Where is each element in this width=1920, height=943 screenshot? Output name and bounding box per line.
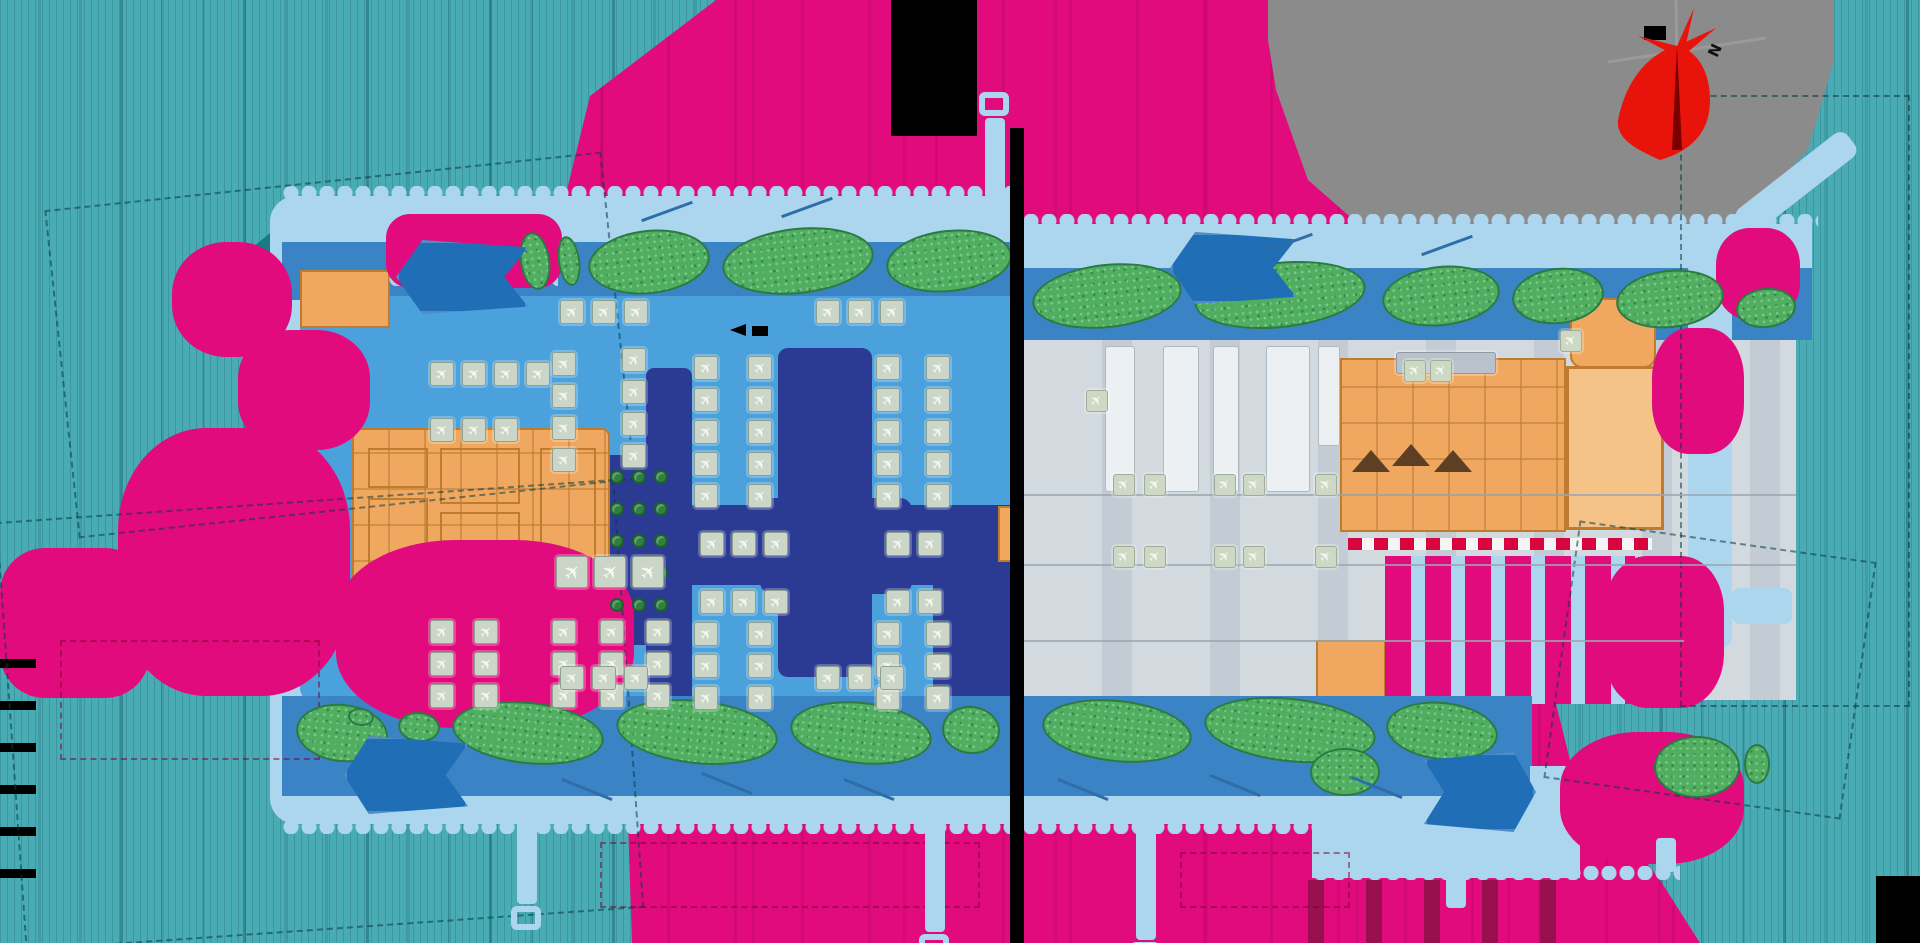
gate-stand-icon: ✈ bbox=[748, 420, 772, 444]
airplane-icon: ✈ bbox=[1562, 332, 1580, 350]
gate-stand-icon: ✈ bbox=[646, 684, 670, 708]
airplane-icon: ✈ bbox=[750, 656, 770, 676]
gate-stand-icon: ✈ bbox=[430, 684, 454, 708]
airplane-icon: ✈ bbox=[624, 414, 644, 434]
future-terminal-slab bbox=[1213, 346, 1239, 492]
avenue-culdesac-loop bbox=[919, 934, 949, 943]
airplane-icon: ✈ bbox=[432, 622, 452, 642]
airplane-icon: ✈ bbox=[1088, 392, 1106, 410]
gate-stand-icon: ✈ bbox=[592, 666, 616, 690]
gate-stand-icon: ✈ bbox=[1404, 360, 1426, 382]
airplane-icon: ✈ bbox=[696, 390, 716, 410]
airplane-icon: ✈ bbox=[562, 668, 582, 688]
gate-stand-icon: ✈ bbox=[632, 556, 664, 588]
gate-stand-icon: ✈ bbox=[552, 620, 576, 644]
airplane-icon: ✈ bbox=[1115, 548, 1133, 566]
airplane-icon: ✈ bbox=[882, 302, 902, 322]
airplane-icon: ✈ bbox=[750, 688, 770, 708]
airplane-icon: ✈ bbox=[559, 559, 585, 585]
airplane-icon: ✈ bbox=[878, 454, 898, 474]
airplane-icon: ✈ bbox=[850, 302, 870, 322]
tree-icon bbox=[654, 502, 668, 516]
gate-stand-icon: ✈ bbox=[694, 452, 718, 476]
gate-stand-icon: ✈ bbox=[622, 444, 646, 468]
gate-stand-icon: ✈ bbox=[886, 532, 910, 556]
gate-stand-icon: ✈ bbox=[848, 666, 872, 690]
airplane-icon: ✈ bbox=[696, 358, 716, 378]
phase-divider-line bbox=[1010, 128, 1024, 943]
gate-stand-icon: ✈ bbox=[926, 484, 950, 508]
tree-icon bbox=[632, 470, 646, 484]
airplane-icon: ✈ bbox=[702, 592, 722, 612]
gate-stand-icon: ✈ bbox=[764, 532, 788, 556]
airplane-icon: ✈ bbox=[928, 624, 948, 644]
tree-icon bbox=[654, 534, 668, 548]
airplane-icon: ✈ bbox=[594, 302, 614, 322]
gate-stand-icon: ✈ bbox=[1560, 330, 1582, 352]
airplane-icon: ✈ bbox=[528, 364, 548, 384]
airplane-icon: ✈ bbox=[696, 454, 716, 474]
gate-stand-icon: ✈ bbox=[700, 532, 724, 556]
gate-stand-icon: ✈ bbox=[552, 352, 576, 376]
gate-stand-icon: ✈ bbox=[594, 556, 626, 588]
gate-stand-icon: ✈ bbox=[886, 590, 910, 614]
airplane-icon: ✈ bbox=[496, 364, 516, 384]
airplane-icon: ✈ bbox=[928, 486, 948, 506]
avenue-culdesac-loop bbox=[511, 906, 541, 930]
gate-stand-icon: ✈ bbox=[1144, 546, 1166, 568]
gate-stand-icon: ✈ bbox=[748, 654, 772, 678]
gate-stand-icon: ✈ bbox=[622, 380, 646, 404]
gate-stand-icon: ✈ bbox=[926, 388, 950, 412]
gate-stand-icon: ✈ bbox=[526, 362, 550, 386]
airplane-icon: ✈ bbox=[734, 592, 754, 612]
airplane-icon: ✈ bbox=[818, 302, 838, 322]
gate-stand-icon: ✈ bbox=[1214, 546, 1236, 568]
gate-stand-icon: ✈ bbox=[748, 484, 772, 508]
survey-guide-outline bbox=[44, 152, 635, 539]
gate-stand-icon: ✈ bbox=[926, 356, 950, 380]
gate-stand-icon: ✈ bbox=[700, 590, 724, 614]
gate-stand-icon: ✈ bbox=[918, 532, 942, 556]
tree-icon bbox=[654, 470, 668, 484]
airplane-icon: ✈ bbox=[554, 386, 574, 406]
airplane-icon: ✈ bbox=[464, 364, 484, 384]
gate-stand-icon: ✈ bbox=[646, 620, 670, 644]
gate-stand-icon: ✈ bbox=[1113, 474, 1135, 496]
landscaped-avenue bbox=[1656, 838, 1676, 872]
avenue-culdesac-loop bbox=[979, 92, 1009, 116]
airplane-icon: ✈ bbox=[476, 622, 496, 642]
gate-stand-icon: ✈ bbox=[494, 362, 518, 386]
gate-stand-icon: ✈ bbox=[552, 384, 576, 408]
gate-stand-icon: ✈ bbox=[430, 362, 454, 386]
airplane-icon: ✈ bbox=[1245, 548, 1263, 566]
airplane-icon: ✈ bbox=[496, 420, 516, 440]
airplane-icon: ✈ bbox=[920, 592, 940, 612]
lawn-patch bbox=[1744, 744, 1770, 784]
airplane-icon: ✈ bbox=[554, 418, 574, 438]
gate-stand-icon: ✈ bbox=[816, 300, 840, 324]
gate-stand-icon: ✈ bbox=[876, 622, 900, 646]
tree-icon bbox=[632, 534, 646, 548]
gate-stand-icon: ✈ bbox=[816, 666, 840, 690]
landscaped-avenue bbox=[1446, 838, 1466, 908]
gate-stand-icon: ✈ bbox=[624, 300, 648, 324]
airplane-icon: ✈ bbox=[928, 390, 948, 410]
landscaped-avenue bbox=[925, 820, 945, 932]
landscaped-avenue bbox=[985, 118, 1005, 198]
airplane-icon: ✈ bbox=[928, 656, 948, 676]
gate-stand-icon: ✈ bbox=[876, 420, 900, 444]
airplane-icon: ✈ bbox=[750, 390, 770, 410]
airplane-icon: ✈ bbox=[928, 358, 948, 378]
airplane-icon: ✈ bbox=[750, 454, 770, 474]
gate-stand-icon: ✈ bbox=[624, 666, 648, 690]
gate-stand-icon: ✈ bbox=[694, 484, 718, 508]
landscaped-avenue bbox=[1136, 820, 1156, 940]
airplane-icon: ✈ bbox=[928, 422, 948, 442]
gate-stand-icon: ✈ bbox=[880, 666, 904, 690]
airplane-icon: ✈ bbox=[702, 534, 722, 554]
gate-stand-icon: ✈ bbox=[474, 684, 498, 708]
future-terminal-slab bbox=[1266, 346, 1310, 492]
airplane-icon: ✈ bbox=[624, 382, 644, 402]
airplane-icon: ✈ bbox=[626, 302, 646, 322]
airplane-icon: ✈ bbox=[554, 450, 574, 470]
gate-stand-icon: ✈ bbox=[926, 452, 950, 476]
tree-icon bbox=[610, 534, 624, 548]
airplane-icon: ✈ bbox=[928, 454, 948, 474]
airplane-icon: ✈ bbox=[624, 350, 644, 370]
gate-stand-icon: ✈ bbox=[552, 448, 576, 472]
gate-stand-icon: ✈ bbox=[430, 620, 454, 644]
airplane-icon: ✈ bbox=[476, 686, 496, 706]
gate-stand-icon: ✈ bbox=[430, 652, 454, 676]
airplane-icon: ✈ bbox=[624, 446, 644, 466]
airplane-icon: ✈ bbox=[464, 420, 484, 440]
pier-finger-north-b bbox=[778, 348, 872, 508]
warehouse-roof-triangle bbox=[1392, 444, 1430, 466]
legend-block-top bbox=[891, 0, 977, 136]
gate-stand-icon: ✈ bbox=[430, 418, 454, 442]
airplane-icon: ✈ bbox=[696, 624, 716, 644]
landscaped-avenue bbox=[517, 820, 537, 904]
warehouse-roof-triangle bbox=[1352, 450, 1390, 472]
gate-stand-icon: ✈ bbox=[876, 388, 900, 412]
gate-stand-icon: ✈ bbox=[748, 356, 772, 380]
tree-icon bbox=[610, 470, 624, 484]
airplane-icon: ✈ bbox=[878, 422, 898, 442]
tree-line-southeast bbox=[1312, 866, 1680, 880]
gate-stand-icon: ✈ bbox=[918, 590, 942, 614]
airplane-icon: ✈ bbox=[696, 688, 716, 708]
airplane-icon: ✈ bbox=[878, 688, 898, 708]
airplane-icon: ✈ bbox=[594, 668, 614, 688]
pier-finger-north-a bbox=[646, 368, 692, 508]
airplane-icon: ✈ bbox=[1406, 362, 1424, 380]
warehouse-roof-triangle bbox=[1434, 450, 1472, 472]
future-terminal-slab bbox=[1105, 346, 1135, 492]
survey-mark-outline bbox=[60, 640, 320, 760]
gate-stand-icon: ✈ bbox=[732, 532, 756, 556]
airplane-icon: ✈ bbox=[696, 486, 716, 506]
airplane-icon: ✈ bbox=[1146, 476, 1164, 494]
gate-stand-icon: ✈ bbox=[1214, 474, 1236, 496]
airplane-icon: ✈ bbox=[1216, 548, 1234, 566]
airplane-icon: ✈ bbox=[476, 654, 496, 674]
tree-icon bbox=[654, 598, 668, 612]
gate-stand-icon: ✈ bbox=[494, 418, 518, 442]
gate-stand-icon: ✈ bbox=[748, 686, 772, 710]
airplane-icon: ✈ bbox=[635, 559, 661, 585]
gate-stand-icon: ✈ bbox=[694, 622, 718, 646]
airplane-icon: ✈ bbox=[750, 486, 770, 506]
gate-stand-icon: ✈ bbox=[600, 620, 624, 644]
airplane-icon: ✈ bbox=[602, 622, 622, 642]
airplane-icon: ✈ bbox=[626, 668, 646, 688]
gate-stand-icon: ✈ bbox=[926, 420, 950, 444]
airplane-icon: ✈ bbox=[734, 534, 754, 554]
gate-stand-icon: ✈ bbox=[592, 300, 616, 324]
airplane-icon: ✈ bbox=[432, 364, 452, 384]
gate-stand-icon: ✈ bbox=[1315, 474, 1337, 496]
gate-stand-icon: ✈ bbox=[462, 362, 486, 386]
gate-stand-icon: ✈ bbox=[552, 416, 576, 440]
airplane-icon: ✈ bbox=[882, 668, 902, 688]
future-terminal-slab bbox=[1163, 346, 1199, 492]
tree-line-south-right bbox=[1022, 820, 1312, 834]
gate-stand-icon: ✈ bbox=[694, 686, 718, 710]
airplane-icon: ✈ bbox=[1115, 476, 1133, 494]
gate-stand-icon: ✈ bbox=[1086, 390, 1108, 412]
gate-stand-icon: ✈ bbox=[764, 590, 788, 614]
gate-stand-icon: ✈ bbox=[622, 412, 646, 436]
airplane-icon: ✈ bbox=[928, 688, 948, 708]
gate-stand-icon: ✈ bbox=[1243, 546, 1265, 568]
airplane-icon: ✈ bbox=[818, 668, 838, 688]
airplane-icon: ✈ bbox=[750, 358, 770, 378]
airplane-icon: ✈ bbox=[432, 686, 452, 706]
airplane-icon: ✈ bbox=[648, 654, 668, 674]
gate-stand-icon: ✈ bbox=[1144, 474, 1166, 496]
gate-stand-icon: ✈ bbox=[848, 300, 872, 324]
airplane-icon: ✈ bbox=[850, 668, 870, 688]
cargo-warehouse-east bbox=[1566, 366, 1664, 530]
airplane-icon: ✈ bbox=[878, 390, 898, 410]
gate-stand-icon: ✈ bbox=[880, 300, 904, 324]
airplane-icon: ✈ bbox=[878, 358, 898, 378]
gate-stand-icon: ✈ bbox=[694, 356, 718, 380]
gate-stand-icon: ✈ bbox=[876, 484, 900, 508]
airplane-icon: ✈ bbox=[878, 624, 898, 644]
road-arrow-mark-2 bbox=[752, 326, 768, 336]
apron-seam-line bbox=[1024, 564, 1796, 566]
cargo-complex-grid bbox=[1340, 358, 1566, 532]
gate-stand-icon: ✈ bbox=[1430, 360, 1452, 382]
gate-stand-icon: ✈ bbox=[926, 686, 950, 710]
gate-stand-icon: ✈ bbox=[462, 418, 486, 442]
airplane-icon: ✈ bbox=[648, 622, 668, 642]
pier-finger-south-b bbox=[778, 585, 872, 677]
gate-stand-icon: ✈ bbox=[694, 654, 718, 678]
airplane-icon: ✈ bbox=[888, 592, 908, 612]
airplane-icon: ✈ bbox=[432, 420, 452, 440]
airport-map: N ✈✈✈✈✈✈✈✈✈✈✈✈✈✈✈✈✈✈✈✈✈✈✈✈✈✈✈✈✈✈✈✈✈✈✈✈✈✈… bbox=[0, 0, 1920, 943]
gate-stand-icon: ✈ bbox=[474, 620, 498, 644]
gate-stand-icon: ✈ bbox=[560, 300, 584, 324]
airplane-icon: ✈ bbox=[750, 624, 770, 644]
airplane-icon: ✈ bbox=[554, 354, 574, 374]
tree-icon bbox=[610, 598, 624, 612]
airplane-icon: ✈ bbox=[1432, 362, 1450, 380]
gate-stand-icon: ✈ bbox=[926, 622, 950, 646]
gate-stand-icon: ✈ bbox=[560, 666, 584, 690]
gate-stand-icon: ✈ bbox=[926, 654, 950, 678]
gate-stand-icon: ✈ bbox=[876, 356, 900, 380]
airplane-icon: ✈ bbox=[766, 534, 786, 554]
gate-stand-icon: ✈ bbox=[1315, 546, 1337, 568]
gate-stand-icon: ✈ bbox=[694, 388, 718, 412]
gate-stand-icon: ✈ bbox=[748, 622, 772, 646]
apron-seam-line bbox=[1024, 640, 1684, 642]
gate-stand-icon: ✈ bbox=[694, 420, 718, 444]
compass-rose-icon: N bbox=[1598, 0, 1778, 170]
airplane-icon: ✈ bbox=[878, 486, 898, 506]
airplane-icon: ✈ bbox=[1317, 548, 1335, 566]
airplane-icon: ✈ bbox=[1245, 476, 1263, 494]
airplane-icon: ✈ bbox=[1146, 548, 1164, 566]
airplane-icon: ✈ bbox=[696, 422, 716, 442]
tree-icon bbox=[610, 502, 624, 516]
airplane-icon: ✈ bbox=[554, 622, 574, 642]
future-terminal-slab bbox=[1318, 346, 1340, 446]
gate-stand-icon: ✈ bbox=[1113, 546, 1135, 568]
airplane-icon: ✈ bbox=[1317, 476, 1335, 494]
airplane-icon: ✈ bbox=[597, 559, 623, 585]
airplane-icon: ✈ bbox=[920, 534, 940, 554]
gate-stand-icon: ✈ bbox=[748, 452, 772, 476]
legend-block-bottom-right bbox=[1876, 876, 1920, 943]
tree-icon bbox=[632, 502, 646, 516]
survey-mark-outline bbox=[600, 842, 980, 908]
airplane-icon: ✈ bbox=[1216, 476, 1234, 494]
gate-stand-icon: ✈ bbox=[556, 556, 588, 588]
apron-seam-line bbox=[1024, 494, 1796, 496]
gate-stand-icon: ✈ bbox=[1243, 474, 1265, 496]
airplane-icon: ✈ bbox=[888, 534, 908, 554]
airplane-icon: ✈ bbox=[648, 686, 668, 706]
airplane-icon: ✈ bbox=[432, 654, 452, 674]
gate-stand-icon: ✈ bbox=[732, 590, 756, 614]
tree-icon bbox=[632, 598, 646, 612]
airplane-icon: ✈ bbox=[766, 592, 786, 612]
survey-mark-outline bbox=[1180, 852, 1350, 908]
gate-stand-icon: ✈ bbox=[876, 452, 900, 476]
gate-stand-icon: ✈ bbox=[646, 652, 670, 676]
lawn-patch bbox=[1654, 736, 1740, 798]
airplane-icon: ✈ bbox=[750, 422, 770, 442]
lawn-patch bbox=[1310, 748, 1380, 796]
airplane-icon: ✈ bbox=[562, 302, 582, 322]
gate-stand-icon: ✈ bbox=[622, 348, 646, 372]
gate-stand-icon: ✈ bbox=[474, 652, 498, 676]
airplane-icon: ✈ bbox=[696, 656, 716, 676]
gate-stand-icon: ✈ bbox=[748, 388, 772, 412]
